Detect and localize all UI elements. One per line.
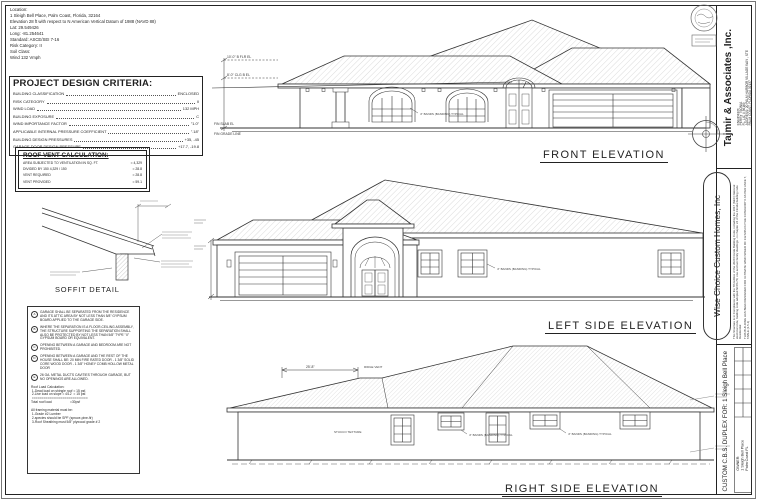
note-item: AGARAGE SHALL BE SEPARATED FROM THE RESI… <box>31 311 136 323</box>
ridge-dimension <box>282 367 358 378</box>
criteria-row: BUILDING EXPOSUREC <box>13 113 199 121</box>
note-item: E26 GA. METAL DUCTS CAVITIES THROUGH GAR… <box>31 374 136 382</box>
garage-door <box>549 90 677 128</box>
ridge-dim-label: 25'-8" <box>306 365 315 369</box>
band-note: 4" BANDS (BANDING) TYPICAL <box>420 112 464 116</box>
criteria-row: BUILDING DESIGN PRESSURES+35, -45 <box>13 136 199 144</box>
roof-vent-calculation: ROOF VENT CALCULATION: AREA SUBJECTED TO… <box>15 147 150 192</box>
front-elevation-label: FRONT ELEVATION <box>540 149 668 163</box>
band-note: 4" BANDS (BANDING) TYPICAL <box>497 267 541 271</box>
drawing-sheet: Location: 1 Sleigh Bell Place, Palm Coas… <box>0 0 757 500</box>
front-elevation-drawing: 10'-0" B FLR EL 8'-0" CLG B EL FIN SLAB … <box>212 8 712 150</box>
criteria-row: WIND IMPORTANCE FACTOR"1.0" <box>13 120 199 128</box>
window <box>438 413 464 430</box>
fascia <box>278 84 710 88</box>
roof-vent-title: ROOF VENT CALCULATION: <box>23 152 142 159</box>
titleblock-divider <box>716 168 752 169</box>
project-address: OWNER: 1 Sleigh Bell Place Palm Coast FL <box>735 418 751 492</box>
dim-label: FIN GRADE LINE <box>214 132 242 136</box>
window <box>418 250 442 277</box>
titleblock-divider <box>716 344 752 345</box>
dimension-lines <box>221 58 278 131</box>
window <box>486 413 509 445</box>
engineer-info: ENGINEER: PERRY TSONIA FL. LIC # 36169 A… <box>737 12 752 164</box>
dim-label: 10'-0" B FLR EL <box>227 55 251 59</box>
project-title: CUSTOM C.B.S. DUPLEX FOR: 1 Sleigh Bell … <box>717 347 733 495</box>
grade-ticks <box>249 460 672 464</box>
design-criteria-title: PROJECT DESIGN CRITERIA: <box>13 78 199 89</box>
location-block: Location: 1 Sleigh Bell Place, Palm Coas… <box>10 7 202 61</box>
criteria-row: WIND LOAD132 MPH <box>13 105 199 113</box>
garage-separation-notes: AGARAGE SHALL BE SEPARATED FROM THE RESI… <box>27 306 140 474</box>
soffit-detail-drawing <box>42 198 207 284</box>
ridge-note: RIDGE VENT <box>364 365 383 369</box>
builder-name-badge: Wise Choice Custom Homes, Inc <box>703 172 731 340</box>
note-item: COPENING BETWEEN A GARAGE AND BEDROOM AR… <box>31 344 136 352</box>
window <box>658 250 684 277</box>
garage-door <box>235 252 331 297</box>
location-line: Wind 132 Vmph <box>10 55 202 61</box>
right-side-elevation-label: RIGHT SIDE ELEVATION <box>502 483 662 497</box>
stucco-note: STUCCO TEXTURE <box>334 430 361 434</box>
dim-label: 8'-0" CLG B EL <box>227 73 250 77</box>
wind-design-note: THIS BUILDING HAS BEEN DESIGNED FOR ULTI… <box>744 173 751 339</box>
note-item: BWHERE THE SEPARATION IS A FLOOR-CEILING… <box>31 326 136 342</box>
project-design-criteria: PROJECT DESIGN CRITERIA: BUILDING CLASSI… <box>9 76 203 156</box>
window <box>391 415 414 445</box>
window <box>458 250 487 277</box>
roof-load-calculation: Roof Load Calculation: 1-Dead load on sh… <box>31 386 136 406</box>
window <box>620 412 650 429</box>
framing-material-notes: All framing material must be: 1-Grade #2… <box>31 409 136 425</box>
roof <box>230 346 712 408</box>
fascia <box>227 408 714 412</box>
code-compliance-note: This Structure is in Compliance with the… <box>733 173 743 339</box>
band-note: 4" BANDS (BANDING) TYPICAL <box>568 432 612 436</box>
criteria-row: APPLICABLE INTERNAL PRESSURE COEFFICIENT… <box>13 128 199 136</box>
left-side-elevation-label: LEFT SIDE ELEVATION <box>545 320 696 334</box>
dim-label: FIN SLAB EL <box>214 122 234 126</box>
engineer-seal-stamp <box>686 2 722 50</box>
fascia-right <box>403 233 703 238</box>
right-side-elevation-drawing: 25'-8" RIDGE VENT STUCCO TEXTURE 4" BAND… <box>222 340 737 492</box>
criteria-row: RISK CATEGORYII <box>13 98 199 106</box>
compass-symbol <box>688 114 724 154</box>
soffit-detail-label: SOFFIT DETAIL <box>55 285 120 294</box>
note-item: DOPENING BETWEEN A GARAGE AND THE REST O… <box>31 355 136 371</box>
band-note: 4" BANDS (BANDING) TYPICAL <box>469 433 513 437</box>
dimension-lines <box>208 238 214 300</box>
criteria-row: BUILDING CLASSIFICATIONENCLOSED <box>13 90 199 98</box>
left-side-elevation-drawing: 4" BANDS (BANDING) TYPICAL <box>205 172 715 324</box>
window <box>530 412 560 429</box>
